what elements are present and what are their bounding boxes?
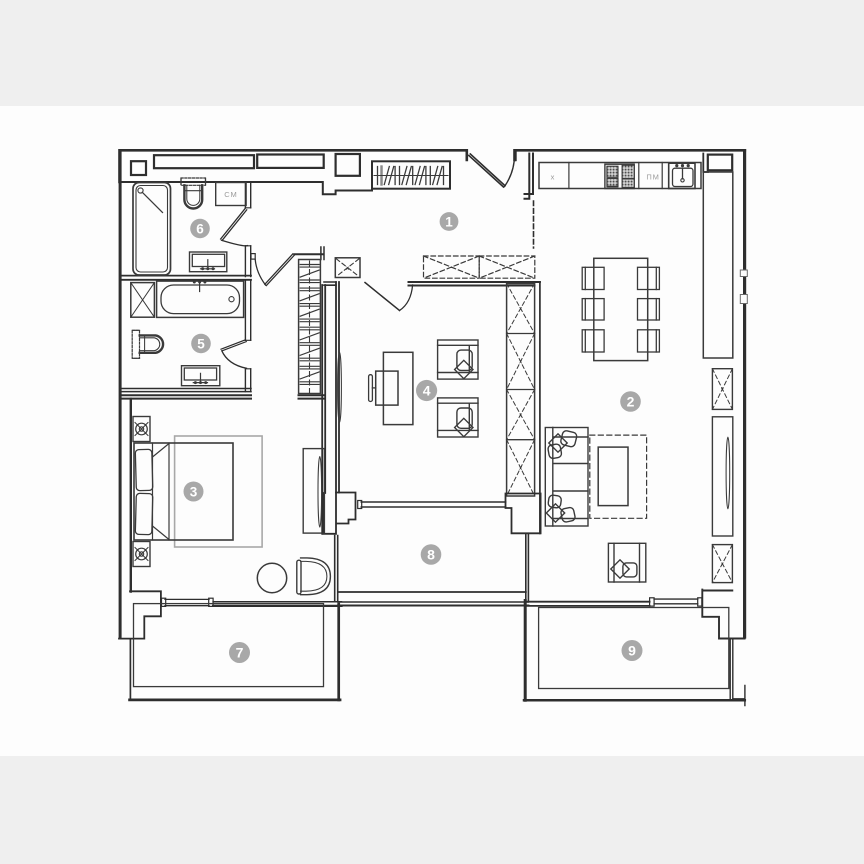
svg-text:6: 6 — [196, 221, 204, 236]
svg-text:x: x — [721, 562, 724, 568]
svg-text:1: 1 — [445, 214, 453, 229]
svg-text:x: x — [519, 466, 522, 472]
svg-text:x: x — [519, 307, 522, 313]
svg-text:4: 4 — [423, 383, 431, 399]
svg-text:x: x — [519, 413, 522, 419]
svg-text:СМ: СМ — [224, 190, 238, 199]
svg-text:8: 8 — [427, 547, 435, 563]
svg-text:x: x — [721, 387, 724, 393]
svg-text:2: 2 — [627, 394, 635, 410]
svg-text:3: 3 — [190, 485, 198, 500]
svg-text:9: 9 — [628, 643, 636, 659]
svg-text:ПМ: ПМ — [646, 173, 659, 182]
svg-text:5: 5 — [197, 336, 205, 351]
svg-text:x: x — [519, 360, 522, 366]
svg-text:x: x — [346, 266, 349, 272]
svg-text:х: х — [551, 173, 555, 182]
svg-text:7: 7 — [236, 645, 244, 661]
